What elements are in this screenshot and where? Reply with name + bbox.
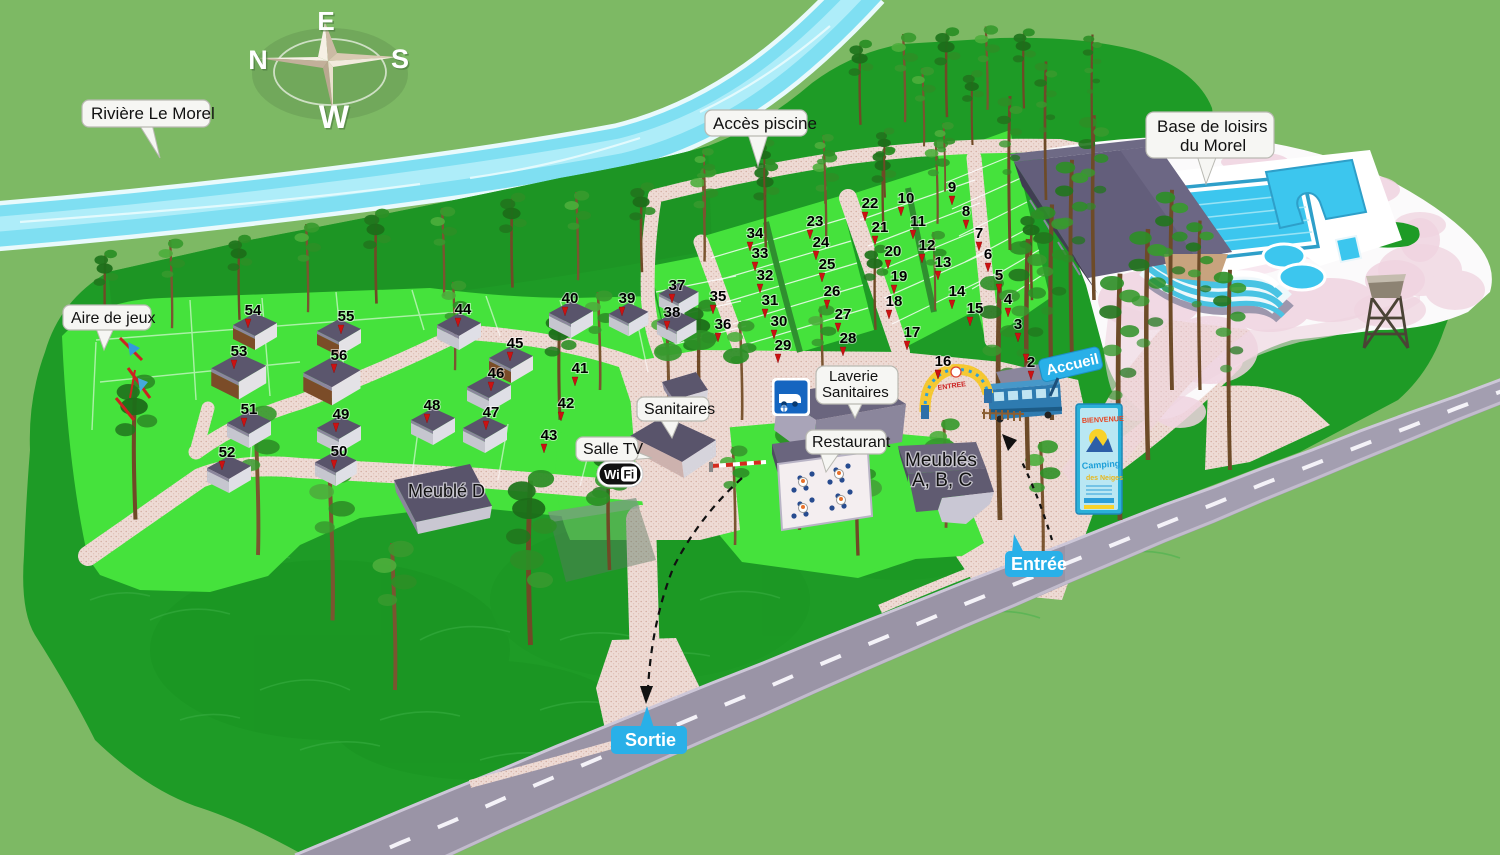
svg-text:40: 40 [562, 290, 579, 307]
svg-text:48: 48 [424, 397, 441, 414]
svg-text:45: 45 [507, 335, 524, 352]
svg-text:5: 5 [995, 267, 1003, 284]
svg-text:13: 13 [935, 254, 952, 271]
svg-text:Base de loisirs: Base de loisirs [1157, 117, 1268, 136]
svg-text:Restaurant: Restaurant [812, 434, 891, 451]
svg-text:E: E [317, 6, 334, 36]
svg-text:34: 34 [747, 225, 764, 242]
svg-text:S: S [391, 44, 409, 74]
svg-text:21: 21 [872, 219, 889, 236]
svg-text:6: 6 [984, 246, 992, 263]
svg-text:36: 36 [715, 316, 732, 333]
svg-text:N: N [248, 45, 268, 75]
svg-text:Sortie: Sortie [625, 730, 676, 750]
svg-text:11: 11 [910, 213, 926, 230]
svg-text:28: 28 [840, 330, 857, 347]
svg-text:26: 26 [824, 283, 841, 300]
svg-text:43: 43 [541, 427, 558, 444]
svg-text:9: 9 [948, 179, 956, 196]
svg-text:55: 55 [338, 308, 355, 325]
svg-text:Fi: Fi [624, 468, 635, 482]
svg-text:24: 24 [813, 234, 830, 251]
svg-text:54: 54 [245, 302, 262, 319]
svg-text:53: 53 [231, 343, 248, 360]
svg-text:17: 17 [904, 324, 921, 341]
svg-text:14: 14 [949, 283, 966, 300]
svg-text:27: 27 [835, 306, 852, 323]
svg-text:Sanitaires: Sanitaires [644, 401, 715, 418]
svg-text:38: 38 [664, 304, 681, 321]
svg-text:12: 12 [919, 237, 936, 254]
svg-text:Laverie: Laverie [829, 368, 878, 385]
svg-text:Meublés: Meublés [905, 450, 977, 471]
svg-text:A, B, C: A, B, C [912, 470, 972, 491]
svg-text:4: 4 [1004, 291, 1013, 308]
svg-text:44: 44 [455, 301, 472, 318]
svg-text:15: 15 [967, 300, 984, 317]
svg-text:25: 25 [819, 256, 836, 273]
svg-text:32: 32 [757, 267, 774, 284]
svg-text:33: 33 [752, 245, 769, 262]
svg-text:Accès piscine: Accès piscine [713, 114, 817, 133]
svg-text:22: 22 [862, 195, 879, 212]
svg-text:51: 51 [241, 401, 258, 418]
svg-text:16: 16 [935, 353, 952, 370]
svg-text:50: 50 [331, 443, 348, 460]
svg-text:42: 42 [558, 395, 575, 412]
svg-text:19: 19 [891, 268, 908, 285]
svg-text:46: 46 [488, 365, 505, 382]
svg-text:Rivière Le Morel: Rivière Le Morel [91, 104, 215, 123]
svg-text:Aire de jeux: Aire de jeux [71, 310, 156, 327]
svg-text:3: 3 [1014, 316, 1022, 333]
svg-text:8: 8 [962, 203, 970, 220]
svg-text:20: 20 [885, 243, 902, 260]
svg-text:des Neiges: des Neiges [1086, 475, 1123, 482]
svg-text:49: 49 [333, 406, 350, 423]
svg-text:Sanitaires: Sanitaires [822, 384, 889, 401]
svg-text:35: 35 [710, 288, 727, 305]
svg-text:39: 39 [619, 290, 636, 307]
svg-text:30: 30 [771, 313, 788, 330]
svg-text:du Morel: du Morel [1180, 136, 1246, 155]
svg-text:Salle TV: Salle TV [583, 441, 644, 458]
svg-text:7: 7 [975, 225, 983, 242]
svg-text:47: 47 [483, 404, 500, 421]
svg-text:56: 56 [331, 347, 348, 364]
svg-text:29: 29 [775, 337, 792, 354]
svg-text:23: 23 [807, 213, 824, 230]
svg-text:52: 52 [219, 444, 236, 461]
svg-text:31: 31 [762, 292, 779, 309]
svg-text:37: 37 [669, 277, 686, 294]
svg-text:Meublé D: Meublé D [408, 481, 485, 501]
svg-text:10: 10 [898, 190, 915, 207]
svg-text:18: 18 [886, 293, 903, 310]
svg-text:W: W [319, 99, 350, 135]
svg-text:41: 41 [572, 360, 589, 377]
svg-text:Wi: Wi [604, 467, 620, 482]
svg-text:Entrée: Entrée [1011, 554, 1067, 574]
